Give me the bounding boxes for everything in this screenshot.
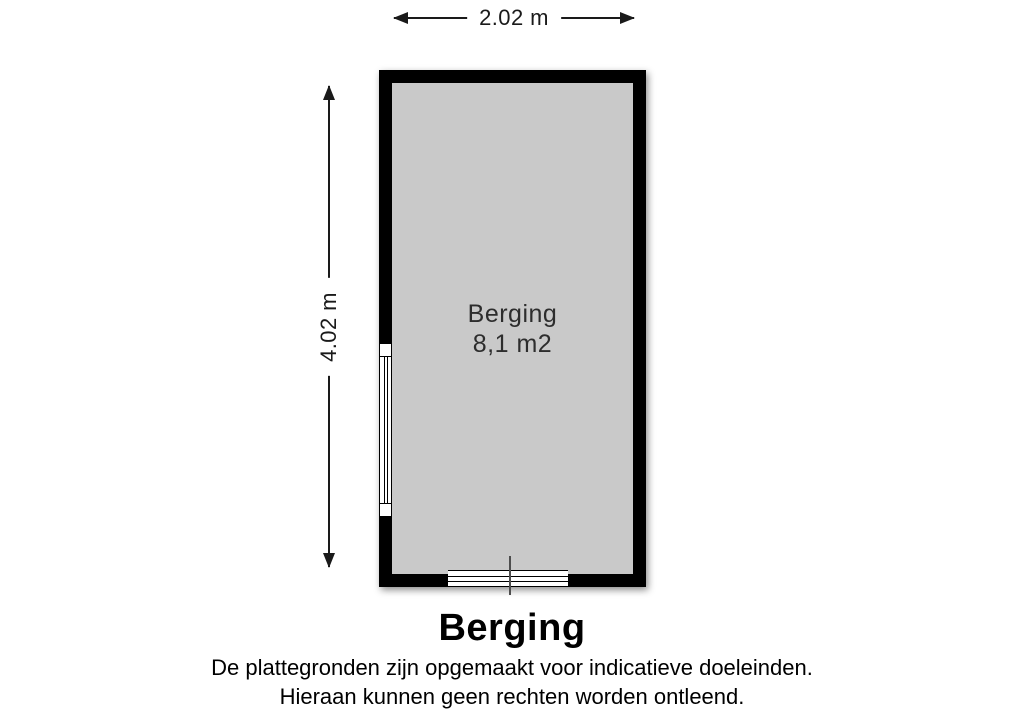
window-bottom-pane — [448, 576, 568, 582]
window-left — [379, 343, 392, 517]
dimension-left: 4.02 m — [317, 85, 341, 568]
dimension-top: 2.02 m — [393, 6, 635, 30]
arrow-right-icon — [620, 12, 635, 24]
floorplan-canvas: 2.02 m 4.02 m Berging 8,1 m2 Berging De … — [0, 0, 1024, 724]
window-bottom — [448, 570, 568, 587]
room-floor: Berging 8,1 m2 — [392, 83, 633, 574]
dimension-width-label: 2.02 m — [467, 5, 561, 31]
room-area: 8,1 m2 — [468, 329, 558, 359]
dimension-height-label: 4.02 m — [316, 278, 342, 376]
room-name: Berging — [468, 299, 558, 329]
window-left-sill-top — [380, 344, 391, 357]
arrow-up-icon — [323, 85, 335, 100]
window-left-pane — [384, 357, 388, 503]
arrow-left-icon — [393, 12, 408, 24]
disclaimer-line-2: Hieraan kunnen geen rechten worden ontle… — [0, 684, 1024, 710]
floor-plan: Berging 8,1 m2 — [379, 70, 646, 587]
window-bottom-center-mark — [509, 556, 511, 595]
room-label: Berging 8,1 m2 — [468, 299, 558, 359]
disclaimer-line-1: De plattegronden zijn opgemaakt voor ind… — [0, 655, 1024, 681]
plan-title: Berging — [0, 608, 1024, 648]
window-left-sill-bottom — [380, 503, 391, 516]
arrow-down-icon — [323, 553, 335, 568]
